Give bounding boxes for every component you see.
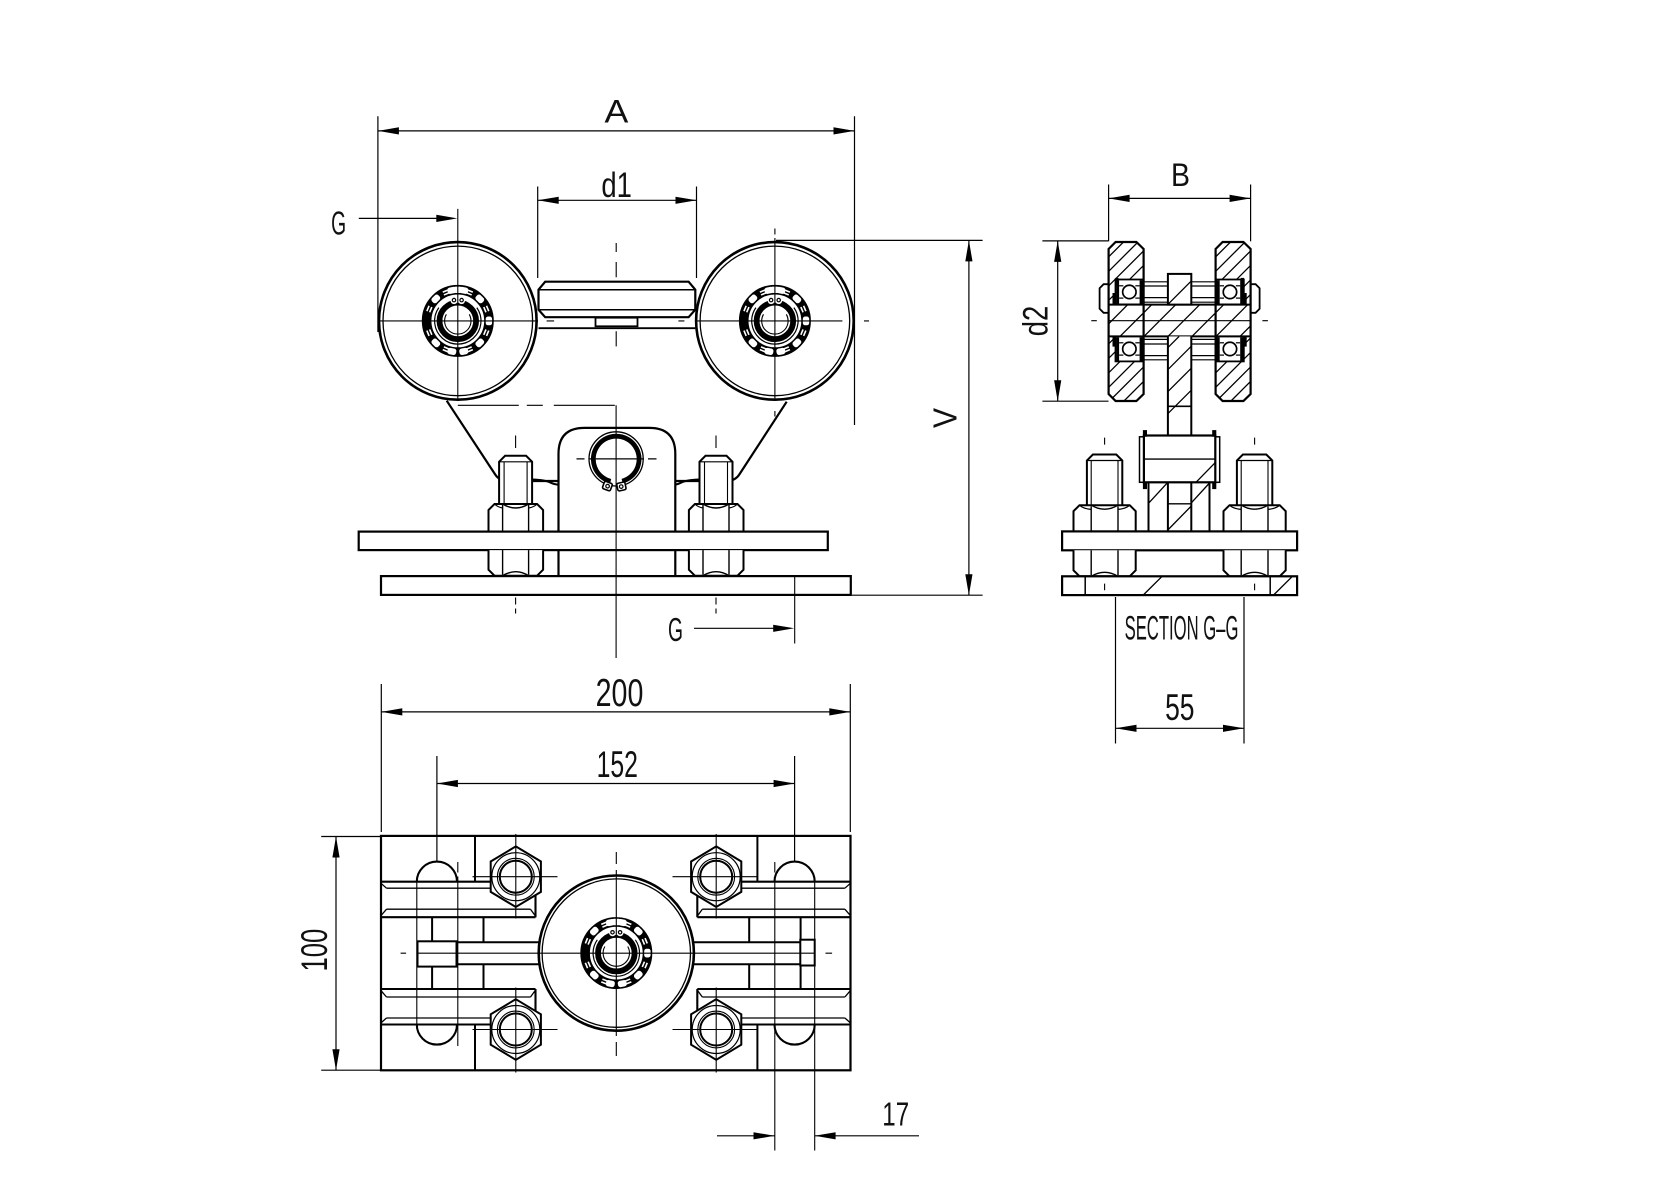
svg-text:55: 55 (1165, 687, 1194, 728)
svg-text:G: G (331, 204, 346, 241)
svg-text:A: A (605, 92, 629, 129)
svg-text:17: 17 (882, 1095, 909, 1132)
svg-text:100: 100 (293, 929, 335, 972)
svg-text:200: 200 (596, 672, 644, 715)
svg-text:d1: d1 (601, 166, 632, 205)
svg-text:d2: d2 (1016, 306, 1055, 337)
svg-text:G: G (668, 611, 683, 648)
svg-text:V: V (927, 408, 964, 428)
svg-text:152: 152 (597, 744, 638, 785)
svg-text:B: B (1171, 156, 1190, 193)
svg-text:SECTION G–G: SECTION G–G (1125, 609, 1239, 647)
